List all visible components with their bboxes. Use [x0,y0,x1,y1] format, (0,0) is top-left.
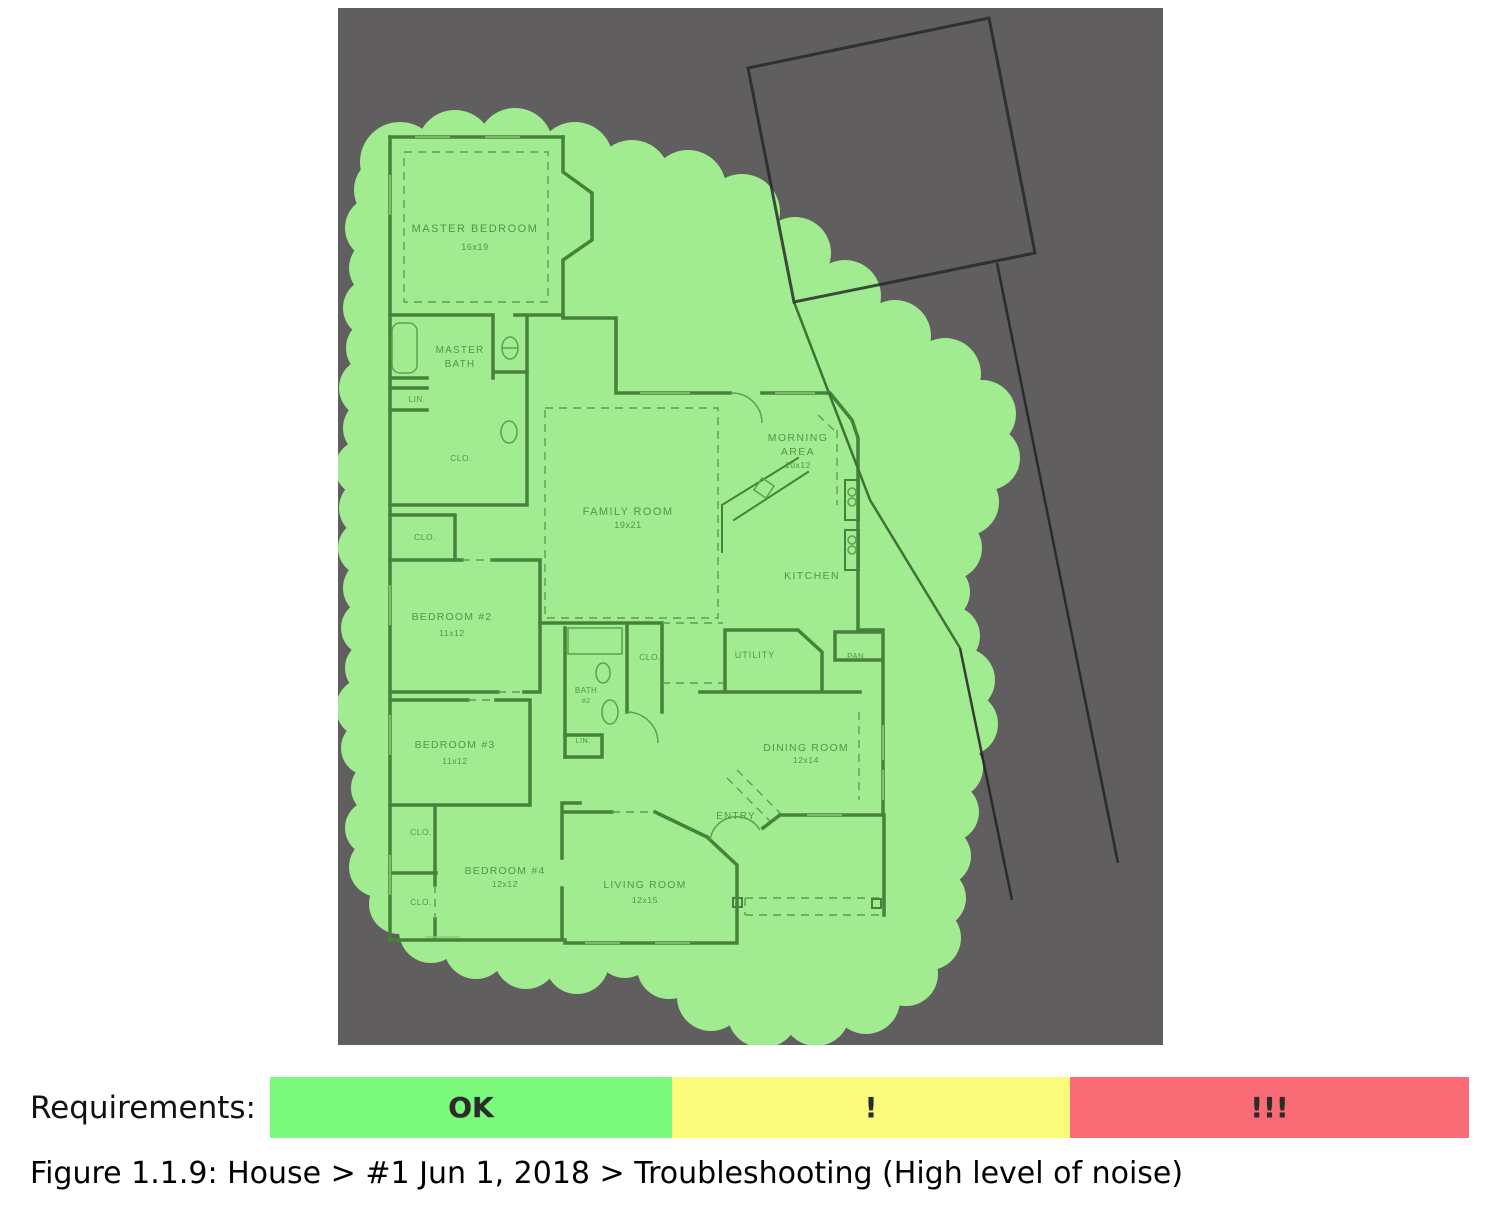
legend-item-ok: OK [270,1077,672,1138]
legend-bars: OK ! !!! [270,1077,1469,1138]
room-label: UTILITY [735,650,776,660]
room-label: MASTER BEDROOM [412,223,539,235]
room-label: 16x19 [461,242,489,252]
room-label: ENTRY [716,811,756,822]
room-label: LIN. [409,395,426,404]
figure-caption: Figure 1.1.9: House > #1 Jun 1, 2018 > T… [30,1156,1183,1191]
room-label: 12x12 [492,879,518,889]
room-label: 19x21 [614,520,642,530]
room-label: KITCHEN [784,570,840,582]
room-label: #2 [582,696,591,705]
room-label: 11x12 [442,756,468,766]
room-label: 12x15 [632,895,658,905]
room-label: 10x12 [785,460,811,470]
legend-title: Requirements: [30,1077,256,1138]
room-label: AREA [781,446,815,458]
room-label: BATH [575,686,597,695]
room-label: 12x14 [793,755,819,765]
room-label: CLO. [450,453,472,463]
legend-item-warning: ! [672,1077,1070,1138]
room-label: CLO. [414,532,436,542]
figure-canvas: MASTER BEDROOM16x19MASTERBATHLIN.CLO.CLO… [0,0,1505,1217]
room-label: BEDROOM #3 [415,739,496,751]
room-label: CLO. [410,897,432,907]
legend-item-critical: !!! [1070,1077,1469,1138]
room-label: MASTER [436,345,485,356]
room-label: LIN. [576,736,591,745]
room-label: BEDROOM #2 [412,611,493,623]
room-label: CLO. [410,827,432,837]
room-label: CLO. [639,652,661,662]
room-label: LIVING ROOM [603,879,686,891]
room-label: MORNING [768,432,829,444]
room-label: PAN. [847,652,867,661]
room-label: 11x12 [439,628,465,638]
room-label: DINING ROOM [763,742,849,754]
floorplan-image: MASTER BEDROOM16x19MASTERBATHLIN.CLO.CLO… [338,8,1163,1045]
room-label: FAMILY ROOM [583,506,674,518]
legend: Requirements: OK ! !!! [0,1077,1505,1138]
room-label: BEDROOM #4 [465,865,546,877]
room-label: BATH [445,359,476,370]
